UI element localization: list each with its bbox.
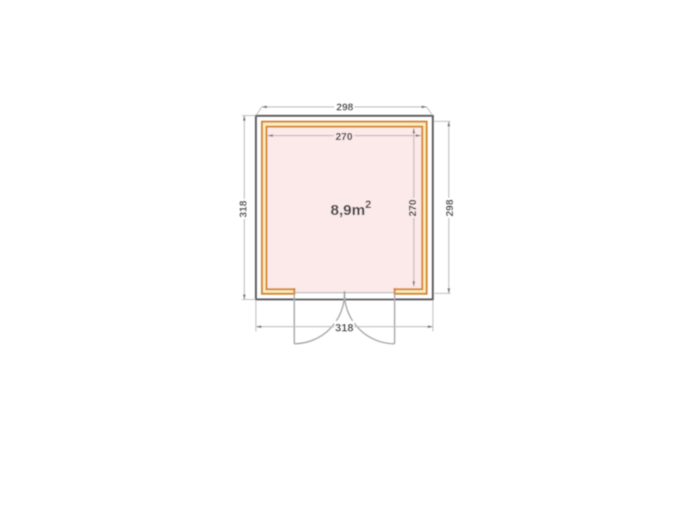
svg-text:270: 270 [336, 132, 353, 143]
svg-text:298: 298 [336, 103, 353, 114]
svg-text:270: 270 [408, 199, 419, 216]
svg-text:318: 318 [238, 200, 249, 217]
svg-text:298: 298 [445, 199, 456, 216]
svg-text:318: 318 [335, 322, 353, 334]
